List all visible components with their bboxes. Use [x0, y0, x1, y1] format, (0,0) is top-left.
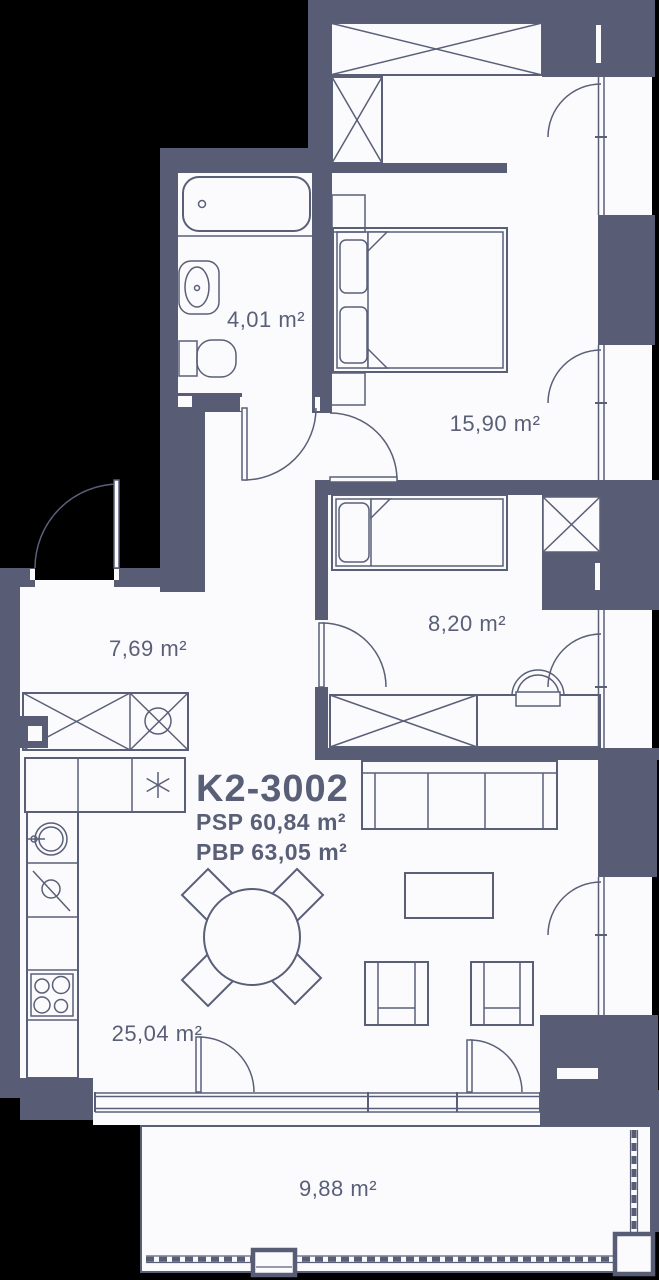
terrace-door-2-leaf — [467, 1040, 472, 1092]
room-label-hallway: 7,69 m² — [109, 636, 187, 661]
floor-plan-page: 4,01 m² 15,90 m² 7,69 m² 8,20 m² 25,04 m… — [0, 0, 659, 1280]
wall-entry-right — [114, 568, 205, 587]
entry-door — [35, 480, 119, 568]
room-label-living: 25,04 m² — [112, 1021, 203, 1046]
terrace-pillar-left — [253, 1250, 295, 1275]
unit-psp: PSP 60,84 m² — [196, 809, 346, 835]
wall-top-left-column — [308, 0, 332, 150]
floor-plan: 4,01 m² 15,90 m² 7,69 m² 8,20 m² 25,04 m… — [0, 0, 659, 1280]
terrace-pillar-right — [615, 1234, 653, 1274]
floor-bathroom — [178, 173, 312, 396]
room-label-bathroom: 4,01 m² — [227, 307, 305, 332]
wall-bedroom2-left-upper — [315, 495, 328, 620]
room-label-bedroom: 15,90 m² — [450, 411, 541, 436]
terrace — [141, 1126, 653, 1275]
wall-corridor-column — [160, 412, 205, 592]
entry-door-arc — [35, 484, 119, 568]
bedroom-door-leaf — [330, 477, 397, 482]
kitchen-counter-top-row — [25, 758, 185, 812]
bedroom2-wardrobe-niche — [543, 497, 600, 552]
wall-bathroom-bottom — [160, 393, 242, 412]
wall-bedroom2-left-lower — [315, 687, 328, 748]
room-label-bedroom2: 8,20 m² — [428, 611, 506, 636]
entry-post-left — [30, 569, 35, 580]
nightstand-bottom — [330, 373, 365, 405]
floor-living — [20, 580, 605, 1092]
desk-chair-seat — [516, 692, 560, 706]
wall-headboard-band — [330, 163, 507, 173]
slit-top-wall — [596, 25, 601, 63]
wall-right-edge-strip — [652, 1090, 659, 1232]
wall-bathroom-bedroom — [312, 173, 332, 413]
bedroom2-door-leaf — [319, 623, 324, 687]
entry-door-leaf — [114, 480, 119, 568]
entry-post-right — [114, 569, 119, 580]
wall-west — [0, 568, 20, 1098]
unit-code: K2-3002 — [196, 768, 349, 810]
room-label-terrace: 9,88 m² — [299, 1176, 377, 1201]
unit-pbp: PBP 63,05 m² — [196, 839, 347, 865]
terrace-slab — [141, 1126, 651, 1272]
wall-kitchen-bottom-block — [20, 1078, 93, 1120]
wall-block-sofa-right — [598, 752, 657, 877]
dining-table — [204, 889, 300, 985]
shaft-notch — [178, 396, 192, 407]
kitchen-counter-column — [27, 812, 78, 1078]
bathroom-door-leaf — [242, 408, 247, 480]
wall-bathroom-left — [160, 173, 178, 396]
wall-block-bedroom-window — [598, 215, 655, 345]
floor-corridor — [205, 396, 332, 600]
title-block: K2-3002 PSP 60,84 m² PBP 63,05 m² — [196, 768, 349, 865]
wall-bathroom-top — [160, 148, 332, 173]
hall-shaft-notch — [28, 726, 42, 741]
notch-bottom-right-block — [557, 1068, 598, 1079]
nightstand-top — [332, 195, 365, 232]
slit-right-mass — [595, 563, 600, 590]
